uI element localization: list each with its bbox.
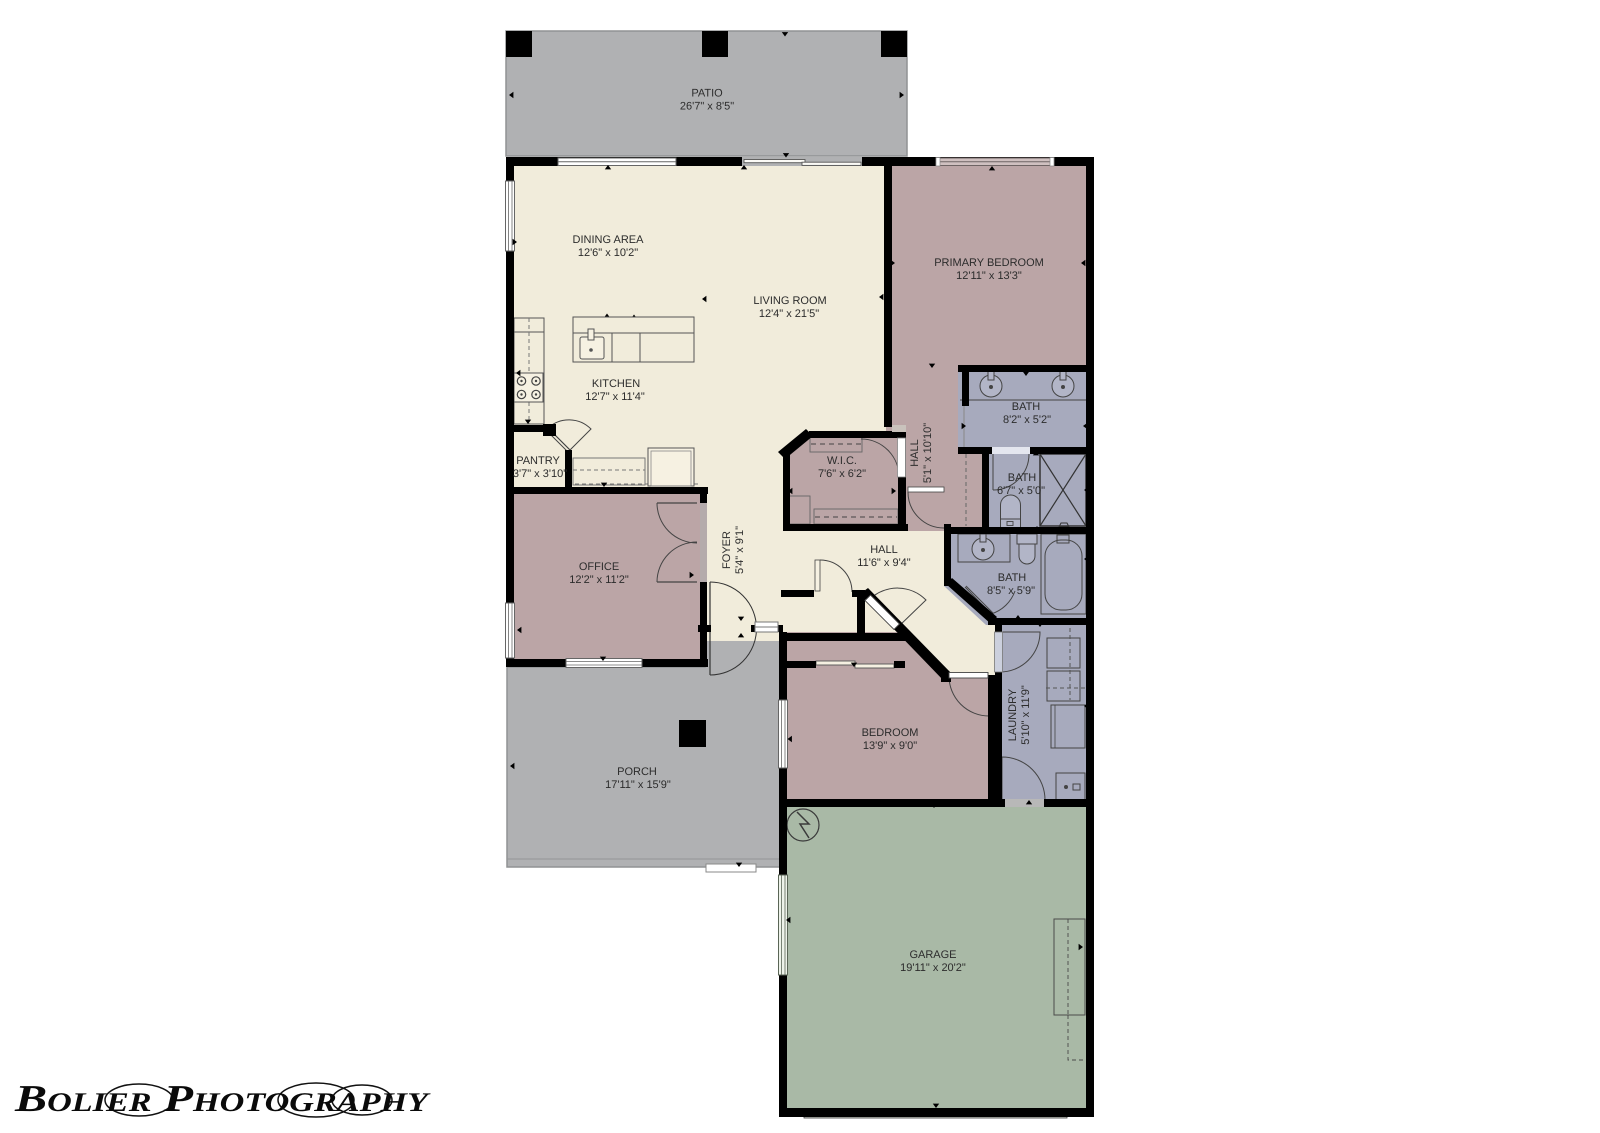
svg-text:KITCHEN: KITCHEN [592, 378, 640, 390]
svg-text:BATH: BATH [1008, 472, 1037, 484]
svg-text:26'7" x 8'5": 26'7" x 8'5" [680, 101, 734, 113]
svg-text:FOYER: FOYER [721, 531, 733, 569]
svg-text:DINING AREA: DINING AREA [573, 234, 645, 246]
svg-text:PATIO: PATIO [691, 88, 723, 100]
svg-text:GARAGE: GARAGE [909, 949, 956, 961]
svg-text:12'11" x 13'3": 12'11" x 13'3" [956, 270, 1022, 282]
svg-text:3'7" x 3'10": 3'7" x 3'10" [513, 468, 567, 480]
svg-text:5'4" x 9'1": 5'4" x 9'1" [734, 526, 746, 574]
svg-text:17'11" x 15'9": 17'11" x 15'9" [605, 779, 671, 791]
svg-text:8'2" x 5'2": 8'2" x 5'2" [1003, 414, 1051, 426]
svg-text:PANTRY: PANTRY [516, 455, 560, 467]
svg-text:11'6" x 9'4": 11'6" x 9'4" [857, 557, 910, 569]
svg-text:HALL: HALL [870, 544, 898, 556]
svg-text:6'7" x 5'0": 6'7" x 5'0" [997, 485, 1045, 497]
svg-text:8'5" x 5'9": 8'5" x 5'9" [987, 585, 1035, 597]
svg-text:Bolier Photography: Bolier Photography [14, 1078, 431, 1120]
svg-text:LAUNDRY: LAUNDRY [1007, 688, 1019, 741]
svg-text:LIVING ROOM: LIVING ROOM [753, 295, 826, 307]
svg-text:12'7" x 11'4": 12'7" x 11'4" [585, 391, 645, 403]
svg-text:OFFICE: OFFICE [579, 561, 619, 573]
svg-text:5'10" x 11'9": 5'10" x 11'9" [1020, 685, 1032, 745]
svg-text:13'9" x 9'0": 13'9" x 9'0" [863, 740, 917, 752]
svg-text:5'1" x 10'10": 5'1" x 10'10" [922, 423, 934, 483]
svg-text:12'4" x 21'5": 12'4" x 21'5" [759, 308, 819, 320]
svg-text:PRIMARY BEDROOM: PRIMARY BEDROOM [934, 257, 1044, 269]
svg-text:BEDROOM: BEDROOM [862, 727, 919, 739]
svg-text:19'11" x 20'2": 19'11" x 20'2" [900, 962, 966, 974]
svg-text:12'2" x 11'2": 12'2" x 11'2" [569, 574, 629, 586]
svg-text:BATH: BATH [998, 572, 1027, 584]
svg-text:7'6" x 6'2": 7'6" x 6'2" [818, 468, 866, 480]
svg-text:W.I.C.: W.I.C. [827, 455, 857, 467]
svg-text:PORCH: PORCH [617, 766, 657, 778]
svg-text:12'6" x 10'2": 12'6" x 10'2" [578, 247, 638, 259]
svg-text:BATH: BATH [1012, 401, 1041, 413]
svg-text:HALL: HALL [909, 439, 921, 467]
